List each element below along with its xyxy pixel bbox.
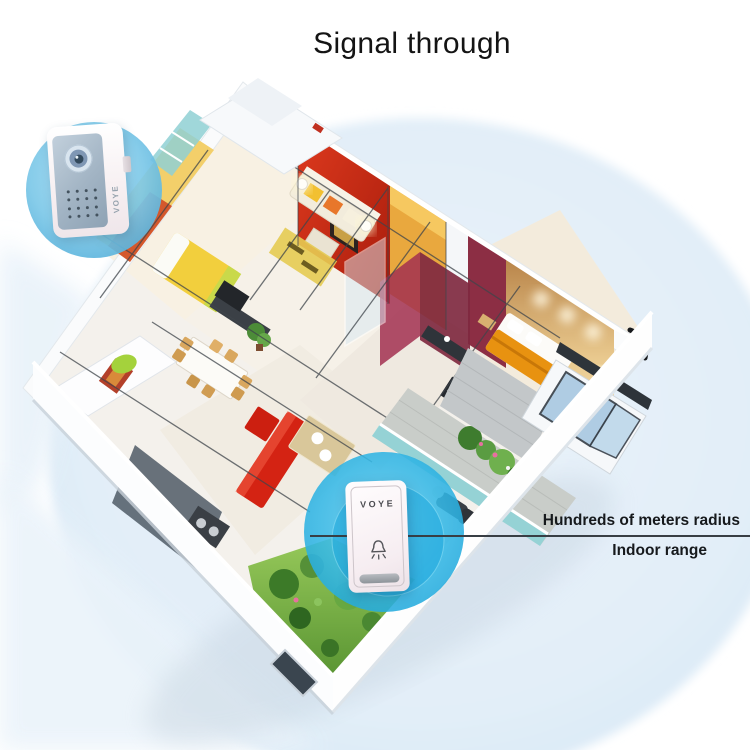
- product-range-illustration: VOYE VOYE Signal through Hundreds of met…: [0, 0, 750, 750]
- push-button: [359, 573, 399, 583]
- range-label: Hundreds of meters radius: [543, 512, 740, 530]
- receiver-front-panel: [52, 133, 108, 230]
- receiver-brand-label: VOYE: [110, 173, 128, 226]
- led-lens-icon: [64, 144, 94, 174]
- doorbell-transmitter: VOYE: [345, 480, 410, 593]
- range-sublabel: Indoor range: [612, 542, 707, 560]
- floorplan-scene: [0, 0, 750, 750]
- speaker-grill-icon: [63, 185, 101, 221]
- bell-icon: [365, 537, 392, 566]
- plug-tab: [122, 156, 131, 173]
- doorbell-receiver: VOYE: [46, 122, 130, 238]
- transmitter-brand-label: VOYE: [346, 498, 407, 510]
- page-title: Signal through: [313, 27, 511, 61]
